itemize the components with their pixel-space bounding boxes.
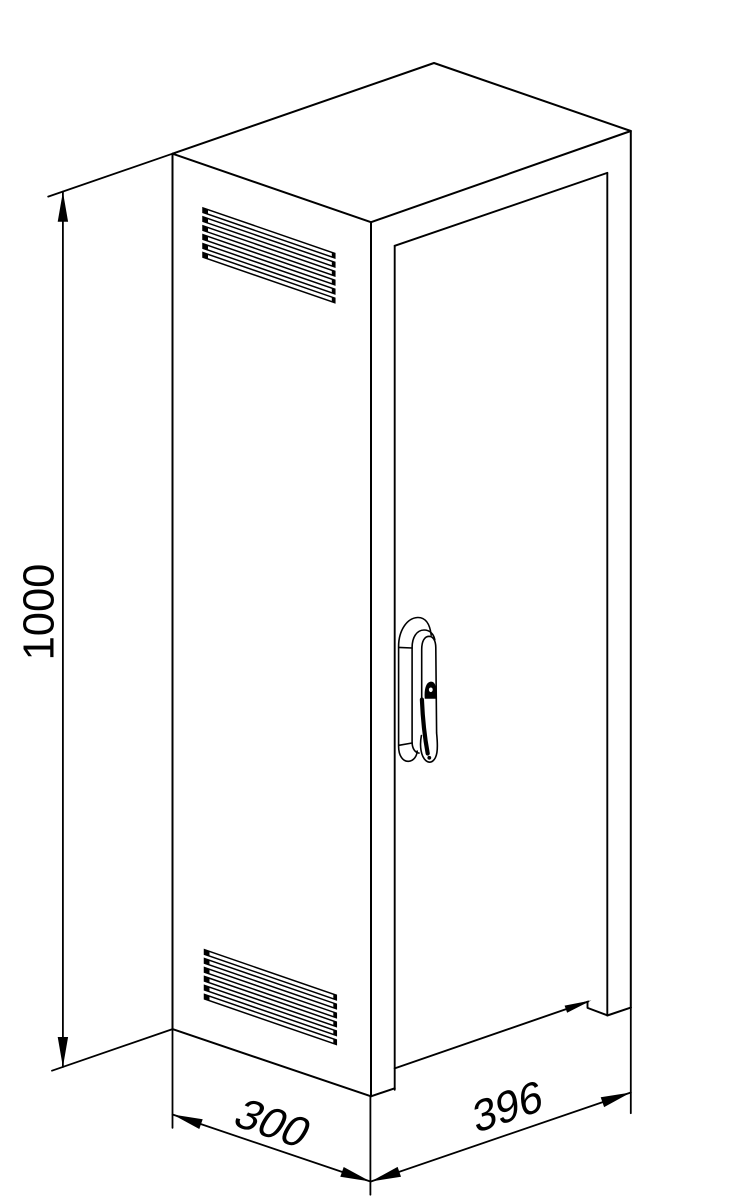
svg-text:1000: 1000	[15, 564, 63, 661]
